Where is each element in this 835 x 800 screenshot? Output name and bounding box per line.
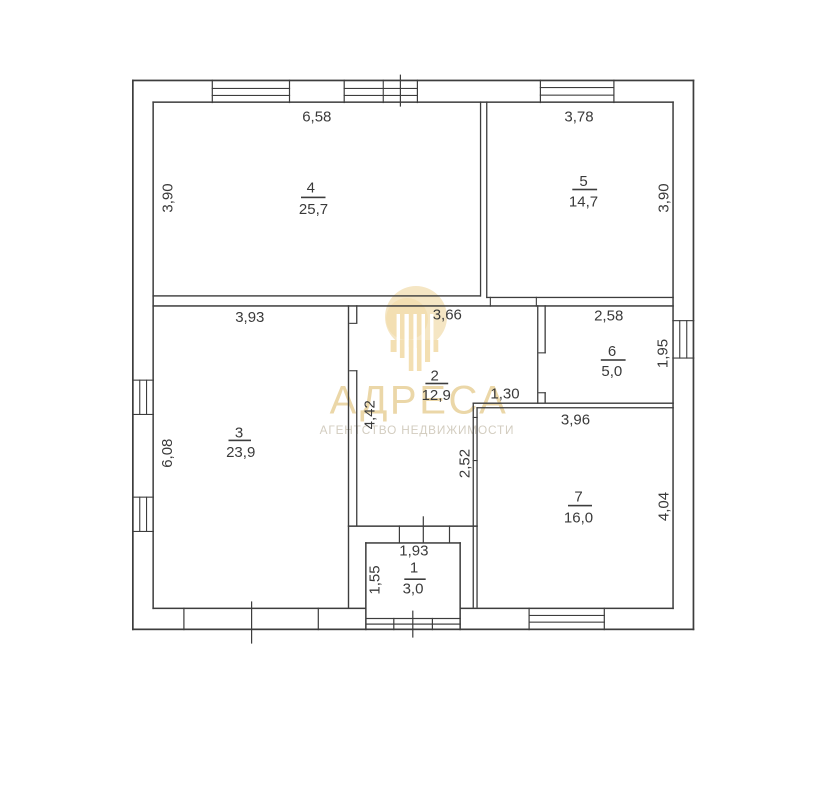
svg-text:2: 2 [431, 367, 439, 384]
svg-text:2,58: 2,58 [594, 308, 623, 325]
svg-text:3,0: 3,0 [403, 581, 424, 598]
svg-text:6,08: 6,08 [159, 439, 176, 468]
svg-text:16,0: 16,0 [564, 510, 593, 527]
svg-text:1,95: 1,95 [655, 339, 672, 368]
svg-text:2,52: 2,52 [456, 449, 473, 478]
svg-text:6,58: 6,58 [302, 108, 331, 125]
svg-text:3,96: 3,96 [561, 411, 590, 428]
svg-text:14,7: 14,7 [569, 193, 598, 210]
svg-text:1: 1 [410, 560, 418, 577]
svg-text:7: 7 [574, 489, 582, 506]
svg-text:1,55: 1,55 [367, 565, 384, 594]
svg-text:3,66: 3,66 [433, 306, 462, 323]
svg-text:4: 4 [307, 180, 315, 197]
svg-text:4,04: 4,04 [655, 492, 672, 521]
svg-text:12,9: 12,9 [422, 387, 451, 404]
svg-text:3: 3 [235, 425, 243, 442]
svg-text:3,93: 3,93 [235, 309, 264, 326]
svg-text:25,7: 25,7 [299, 201, 328, 218]
svg-text:5: 5 [579, 173, 587, 190]
svg-text:3,90: 3,90 [160, 183, 177, 212]
svg-text:6: 6 [608, 343, 616, 360]
svg-text:5,0: 5,0 [601, 363, 622, 380]
svg-text:3,78: 3,78 [564, 109, 593, 126]
svg-text:23,9: 23,9 [226, 444, 255, 461]
svg-text:1,30: 1,30 [490, 385, 519, 402]
svg-text:4,42: 4,42 [362, 400, 379, 429]
svg-text:3,90: 3,90 [655, 183, 672, 212]
svg-text:1,93: 1,93 [399, 542, 428, 559]
